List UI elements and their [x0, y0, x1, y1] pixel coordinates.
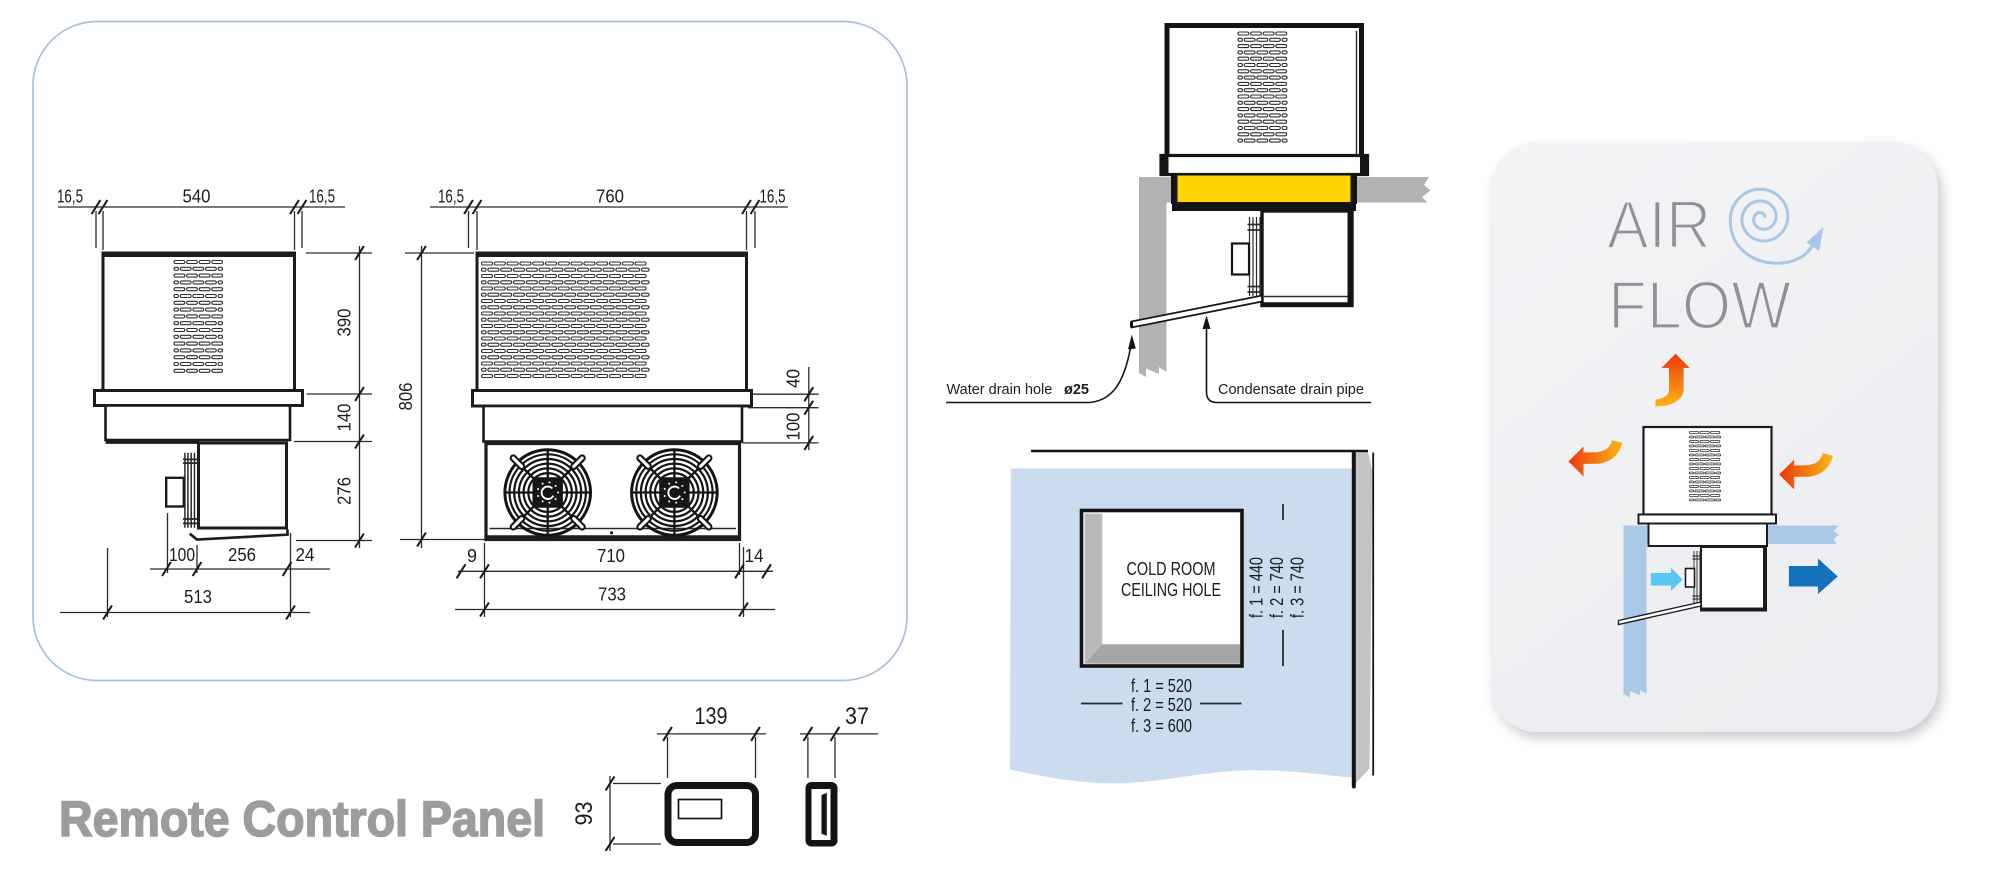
svg-text:9: 9	[467, 546, 477, 566]
svg-text:16,5: 16,5	[760, 187, 786, 207]
svg-text:100: 100	[784, 413, 804, 441]
svg-text:390: 390	[335, 309, 355, 337]
svg-text:COLD ROOM: COLD ROOM	[1127, 558, 1216, 579]
svg-text:CEILING HOLE: CEILING HOLE	[1121, 579, 1221, 600]
svg-text:Remote Control Panel: Remote Control Panel	[59, 791, 545, 847]
svg-text:140: 140	[335, 404, 355, 432]
svg-text:733: 733	[598, 585, 626, 605]
svg-text:ø25: ø25	[1064, 382, 1089, 398]
svg-text:24: 24	[296, 545, 315, 565]
svg-text:40: 40	[784, 369, 804, 388]
svg-text:f. 3 = 740: f. 3 = 740	[1287, 557, 1308, 618]
svg-text:540: 540	[183, 187, 211, 207]
svg-text:100: 100	[169, 545, 195, 565]
svg-text:f. 2 = 520: f. 2 = 520	[1131, 694, 1192, 715]
svg-text:256: 256	[228, 545, 256, 565]
svg-text:93: 93	[571, 802, 598, 826]
svg-text:276: 276	[335, 477, 355, 505]
svg-text:AIR: AIR	[1607, 187, 1711, 263]
svg-text:760: 760	[596, 187, 624, 207]
svg-text:f. 3 = 600: f. 3 = 600	[1131, 715, 1192, 736]
svg-text:f. 1 = 440: f. 1 = 440	[1246, 557, 1267, 618]
svg-text:FLOW: FLOW	[1608, 268, 1791, 344]
svg-text:37: 37	[845, 703, 869, 730]
svg-text:16,5: 16,5	[57, 187, 83, 207]
svg-text:16,5: 16,5	[309, 187, 335, 207]
svg-text:16,5: 16,5	[438, 187, 464, 207]
svg-text:14: 14	[745, 546, 764, 566]
svg-text:139: 139	[695, 703, 728, 730]
svg-text:f. 1 = 520: f. 1 = 520	[1131, 675, 1192, 696]
svg-text:806: 806	[396, 383, 416, 411]
svg-text:710: 710	[597, 546, 625, 566]
svg-text:Water drain hole: Water drain hole	[947, 382, 1053, 398]
svg-text:Condensate drain pipe: Condensate drain pipe	[1218, 382, 1364, 398]
svg-text:f. 2 = 740: f. 2 = 740	[1266, 557, 1287, 618]
svg-text:513: 513	[184, 587, 212, 607]
